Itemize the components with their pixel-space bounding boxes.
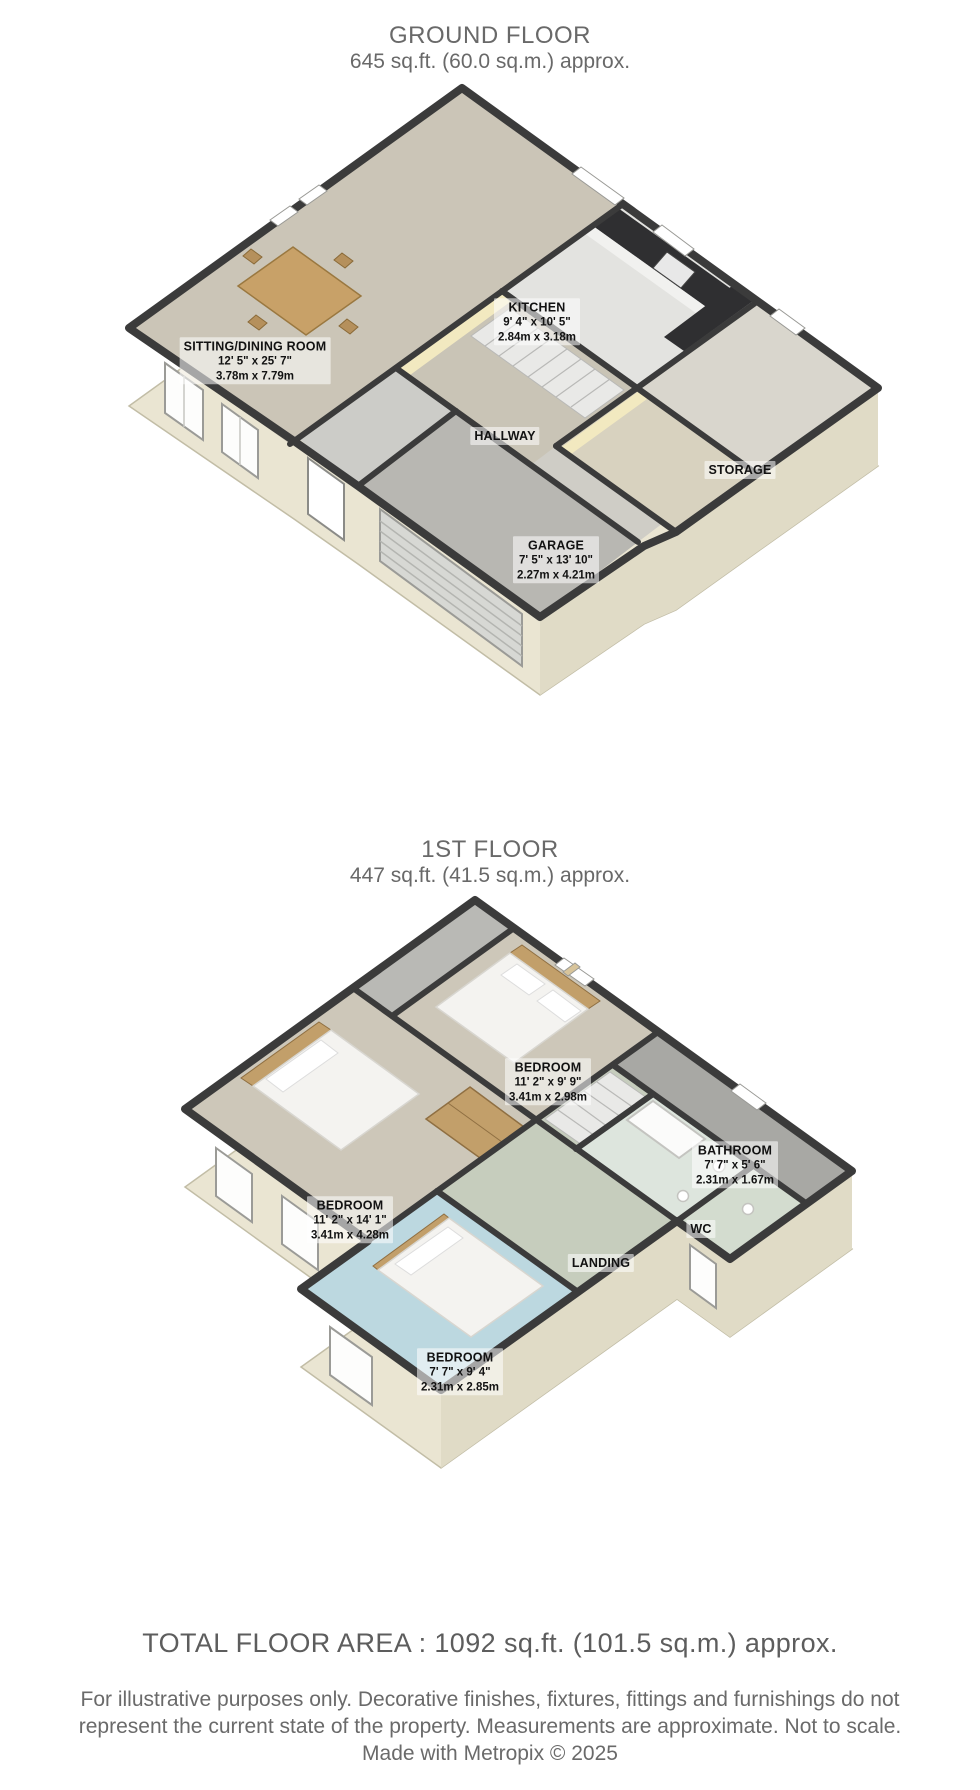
room-label-storage: STORAGE [705,461,776,479]
room-dimensions-imperial: 12' 5" x 25' 7" [184,354,327,369]
room-dimensions-imperial: 7' 5" x 13' 10" [517,553,595,568]
room-name: HALLWAY [474,428,535,444]
room-dimensions-imperial: 7' 7" x 5' 6" [696,1158,774,1173]
room-name: LANDING [572,1255,630,1271]
total-floor-area: TOTAL FLOOR AREA : 1092 sq.ft. (101.5 sq… [0,1628,980,1659]
room-label-bathroom: BATHROOM 7' 7" x 5' 6" 2.31m x 1.67m [692,1141,778,1188]
room-dimensions-metric: 2.27m x 4.21m [517,568,595,583]
credit-line: Made with Metropix © 2025 [0,1740,980,1767]
room-dimensions-metric: 3.78m x 7.79m [184,369,327,384]
room-name: GARAGE [517,537,595,553]
room-dimensions-metric: 2.31m x 1.67m [696,1173,774,1188]
room-name: BEDROOM [311,1197,389,1213]
room-dimensions-metric: 2.31m x 2.85m [421,1380,499,1395]
room-label-hallway: HALLWAY [470,427,539,445]
room-name: BEDROOM [509,1059,587,1075]
ground-floor-illustration [129,88,878,695]
room-dimensions-imperial: 9' 4" x 10' 5" [498,315,576,330]
room-label-sitting-dining: SITTING/DINING ROOM 12' 5" x 25' 7" 3.78… [180,337,331,384]
room-dimensions-imperial: 11' 2" x 9' 9" [509,1075,587,1090]
room-label-wc: WC [686,1220,715,1238]
room-dimensions-metric: 3.41m x 4.28m [311,1228,389,1243]
room-dimensions-metric: 2.84m x 3.18m [498,330,576,345]
room-label-kitchen: KITCHEN 9' 4" x 10' 5" 2.84m x 3.18m [494,298,580,345]
room-name: STORAGE [709,462,772,478]
floorplan-illustration [0,0,980,1790]
floorplan-page: { "ground_floor": { "title": "GROUND FLO… [0,0,980,1790]
room-name: BATHROOM [696,1142,774,1158]
room-label-bedroom2: BEDROOM 11' 2" x 14' 1" 3.41m x 4.28m [307,1196,393,1243]
room-label-bedroom1: BEDROOM 11' 2" x 9' 9" 3.41m x 2.98m [505,1058,591,1105]
room-name: KITCHEN [498,299,576,315]
room-dimensions-metric: 3.41m x 2.98m [509,1090,587,1105]
room-label-landing: LANDING [568,1254,634,1272]
room-label-garage: GARAGE 7' 5" x 13' 10" 2.27m x 4.21m [513,536,599,583]
room-label-bedroom3: BEDROOM 7' 7" x 9' 4" 2.31m x 2.85m [417,1348,503,1395]
room-name: BEDROOM [421,1349,499,1365]
disclaimer: For illustrative purposes only. Decorati… [0,1686,980,1767]
disclaimer-line-2: represent the current state of the prope… [0,1713,980,1740]
disclaimer-line-1: For illustrative purposes only. Decorati… [0,1686,980,1713]
room-dimensions-imperial: 11' 2" x 14' 1" [311,1213,389,1228]
room-dimensions-imperial: 7' 7" x 9' 4" [421,1365,499,1380]
room-name: SITTING/DINING ROOM [184,338,327,354]
room-name: WC [690,1221,711,1237]
